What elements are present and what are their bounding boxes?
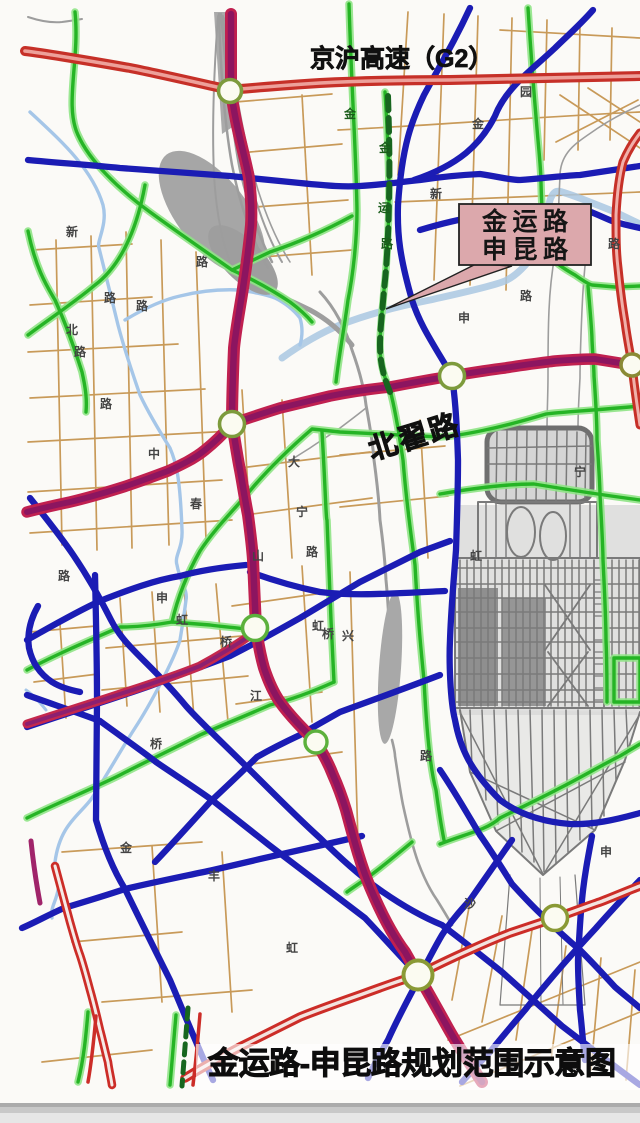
svg-text:大: 大 <box>288 454 300 469</box>
svg-text:路: 路 <box>104 290 117 305</box>
svg-text:宁: 宁 <box>574 464 586 479</box>
svg-text:北: 北 <box>66 322 78 337</box>
svg-text:宁: 宁 <box>296 504 308 519</box>
svg-text:路: 路 <box>520 288 533 303</box>
svg-text:金: 金 <box>119 840 133 855</box>
svg-text:金: 金 <box>378 140 392 155</box>
svg-text:京沪高速（G2）: 京沪高速（G2） <box>310 44 493 73</box>
svg-text:新: 新 <box>430 186 442 201</box>
svg-text:金运路: 金运路 <box>481 207 569 236</box>
svg-text:路: 路 <box>58 568 71 583</box>
svg-text:申: 申 <box>156 590 168 605</box>
svg-text:申: 申 <box>458 310 470 325</box>
svg-text:路: 路 <box>608 236 621 251</box>
svg-text:丰: 丰 <box>208 868 220 883</box>
svg-text:沙: 沙 <box>464 897 476 911</box>
svg-text:虹: 虹 <box>286 940 298 955</box>
svg-text:路: 路 <box>100 396 113 411</box>
svg-text:路: 路 <box>420 748 433 763</box>
svg-text:金: 金 <box>471 116 485 131</box>
svg-text:桥: 桥 <box>322 626 335 641</box>
svg-text:金: 金 <box>343 106 357 121</box>
svg-text:兴: 兴 <box>342 628 354 643</box>
svg-text:申昆路: 申昆路 <box>482 236 569 264</box>
svg-text:路: 路 <box>381 236 394 251</box>
svg-text:桥: 桥 <box>220 634 233 649</box>
svg-text:申: 申 <box>600 844 612 859</box>
svg-text:江: 江 <box>250 688 262 703</box>
svg-text:虹: 虹 <box>470 548 482 563</box>
svg-text:路: 路 <box>136 298 149 313</box>
svg-text:新: 新 <box>66 224 78 239</box>
svg-text:路: 路 <box>196 254 209 269</box>
svg-text:山: 山 <box>252 548 264 563</box>
svg-text:桥: 桥 <box>150 736 163 751</box>
svg-text:虹: 虹 <box>176 612 188 627</box>
svg-text:金运路-申昆路规划范围示意图: 金运路-申昆路规划范围示意图 <box>207 1046 616 1081</box>
svg-text:路: 路 <box>74 344 87 359</box>
svg-text:中: 中 <box>148 446 160 461</box>
svg-text:春: 春 <box>189 496 203 511</box>
svg-text:园: 园 <box>520 85 532 99</box>
svg-text:运: 运 <box>378 201 390 215</box>
svg-text:路: 路 <box>306 544 319 559</box>
